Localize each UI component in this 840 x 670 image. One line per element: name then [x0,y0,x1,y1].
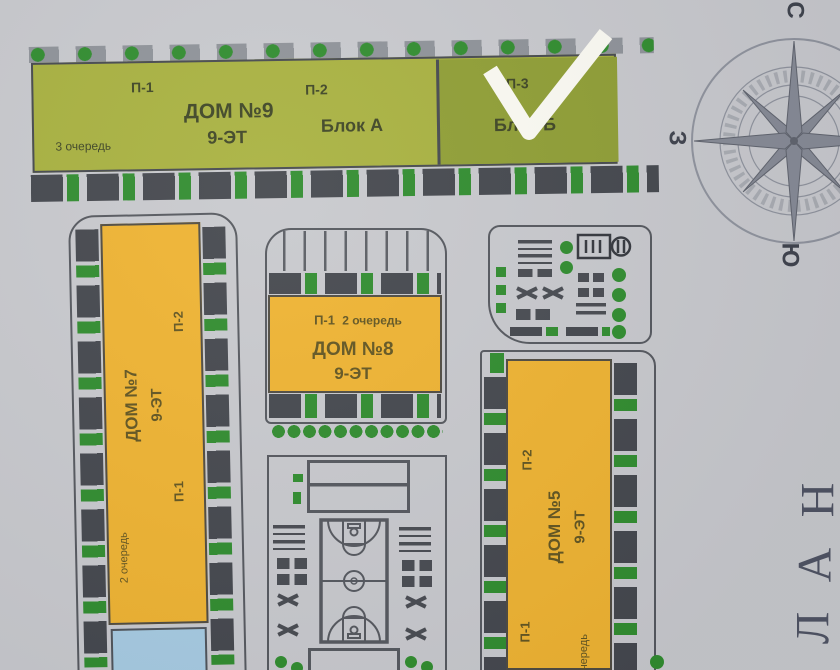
entrance-label-p2: П-2 [171,311,186,332]
building-7-floors: 9-ЭТ [148,388,166,422]
bench-bars-icon [399,527,431,537]
entrance-label-p1: П-1 [131,79,154,95]
queue-1-label: очередь [578,634,590,670]
building-7-block: П-2 ДОМ №7 9-ЭТ П-1 2 очередь [68,212,250,670]
plan-word-letter: Н [791,483,840,518]
queue-3-label: 3 очередь [55,139,111,154]
bench-bars-icon [273,525,305,535]
entrance-label-p2: П-2 [305,81,328,97]
compass-west-label: З [664,130,691,145]
playground-upper [488,225,663,347]
swing-icon [277,622,299,637]
sandbox-icon [578,273,604,282]
plan-word-letter: Л [786,612,840,645]
sport-structure-icon [307,460,410,513]
bush-icon [496,285,506,295]
bush-icon [405,656,417,668]
bush-icon [293,474,303,482]
bush-icon [560,241,573,254]
lower-court-icon [308,648,400,670]
compass-north-label: С [782,1,809,18]
bush-row-icon [271,424,443,439]
bench-bars-icon [576,303,606,319]
building-7-name: ДОМ №7 [121,369,143,442]
entrance-label-p2: П-2 [520,450,535,471]
building-9-name: ДОМ №9 [184,99,274,124]
queue-2-label: 2 очередь [118,532,131,583]
playground-central [265,452,450,670]
bush-icon [612,325,626,339]
bush-icon [612,268,626,282]
entrances-left-column [484,377,506,670]
bush-icon [560,261,573,274]
sandbox-icon [277,574,307,585]
entrance-queue-line: П-1 2 очередь [314,313,402,328]
bush-icon [496,303,506,313]
bench-bars-icon [518,254,552,264]
building-7 [100,222,208,625]
block-a-label: Блок А [321,115,383,137]
bench-bars-icon [518,240,552,250]
queue-2-label: 2 очередь [342,314,402,328]
bush-icon [496,267,506,277]
bush-icon [612,288,626,302]
entrances-bottom-row [269,394,441,418]
compass-south-label: Ю [777,243,804,268]
sandbox-icon [277,558,307,569]
bench-dash-row [510,327,610,336]
sandbox-icon [578,288,604,297]
swing-icon [405,626,427,641]
parking-icon [283,231,429,271]
entrances-top-row [269,273,441,294]
entrance-label-p1: П-1 [171,481,186,502]
bush-icon [650,655,664,669]
swing-icon [277,592,299,607]
bush-icon [275,656,287,668]
building-blue [111,627,208,670]
swing-icon [405,594,427,609]
building-8-block: П-1 2 очередь ДОМ №8 9-ЭТ [263,226,448,446]
swing-icon [516,285,538,300]
building-5-block: П-2 ДОМ №5 9-ЭТ П-1 очередь [478,345,663,670]
bush-icon [612,308,626,322]
sandbox-icon [402,576,432,587]
sandbox-icon [518,269,552,277]
basketball-court-icon [319,518,389,644]
bench-bars-icon [399,542,431,552]
building-8-name: ДОМ №8 [312,339,393,361]
site-plan: П-1 П-2 П-3 ДОМ №9 9-ЭТ Блок А Блок Б 3 … [0,0,840,670]
checkmark-icon [476,24,616,146]
compass-rose-icon: С З Ю [664,0,840,294]
building-5-name: ДОМ №5 [545,491,565,564]
sandbox-icon [402,560,432,571]
building-9-floors: 9-ЭТ [207,127,247,149]
building-5-floors: 9-ЭТ [572,510,589,543]
bush-icon [293,492,301,504]
plan-word-letter: А [788,548,840,583]
bush-icon [490,353,504,373]
sandbox-icon [516,309,550,320]
bush-icon [291,662,303,670]
electrical-box-icon [576,233,632,261]
entrances-right-column [614,363,637,670]
building-8-floors: 9-ЭТ [334,364,372,384]
swing-icon [542,285,564,300]
entrance-label-p1: П-1 [314,313,335,328]
entrance-label-p1: П-1 [518,622,533,643]
bush-icon [421,661,433,670]
bench-bars-icon [273,540,305,550]
